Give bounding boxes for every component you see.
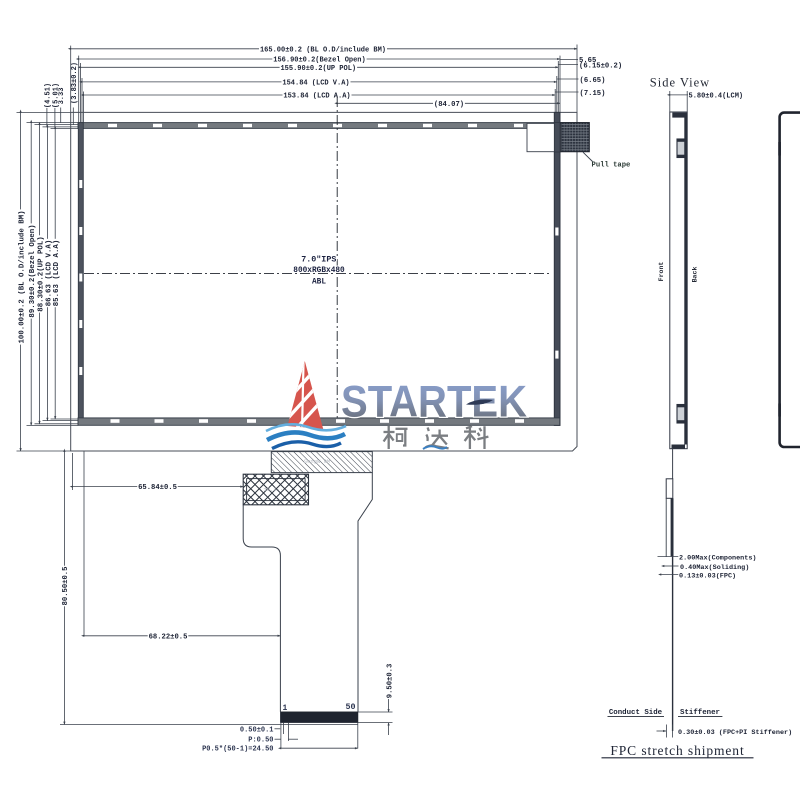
svg-text:SongW 9M: SongW 9M: [304, 458, 330, 465]
svg-text:(7.15): (7.15): [580, 90, 606, 98]
svg-text:0.13±0.03(FPC): 0.13±0.03(FPC): [679, 572, 736, 580]
svg-text:7.0"IPS: 7.0"IPS: [301, 255, 336, 265]
svg-text:P0.5*(50-1)=24.50: P0.5*(50-1)=24.50: [202, 746, 273, 754]
svg-text:(5.01): (5.01): [52, 83, 60, 108]
svg-text:154.84 (LCD V.A): 154.84 (LCD V.A): [282, 79, 349, 87]
svg-text:88.30±0.2(UP POL): 88.30±0.2(UP POL): [38, 236, 46, 311]
svg-text:0.30±0.03 (FPC+PI Stiffener): 0.30±0.03 (FPC+PI Stiffener): [678, 729, 792, 737]
svg-text:89.30±0.2(Bezel Open): 89.30±0.2(Bezel Open): [29, 224, 37, 317]
svg-text:(4.51): (4.51): [44, 83, 52, 108]
svg-text:(84.07): (84.07): [434, 101, 464, 109]
svg-text:0.50±0.1: 0.50±0.1: [240, 726, 274, 734]
svg-text:155.90±0.2(UP POL): 155.90±0.2(UP POL): [280, 65, 356, 73]
svg-text:800xRGBx480: 800xRGBx480: [293, 267, 345, 275]
svg-text:Back: Back: [692, 267, 699, 283]
svg-text:65.84±0.5: 65.84±0.5: [138, 484, 177, 492]
svg-text:ABL: ABL: [312, 279, 326, 287]
svg-text:86.63 (LCD V.A): 86.63 (LCD V.A): [45, 240, 53, 307]
svg-text:100.00±0.2 (BL O.D/include BM): 100.00±0.2 (BL O.D/include BM): [19, 210, 27, 343]
svg-text:Side View: Side View: [650, 76, 710, 90]
svg-text:FPC stretch shipment: FPC stretch shipment: [610, 743, 744, 758]
svg-text:Pull tape: Pull tape: [592, 161, 631, 169]
svg-text:(3.83±0.2): (3.83±0.2): [71, 62, 79, 104]
svg-text:(6.15±0.2): (6.15±0.2): [579, 62, 622, 70]
svg-text:±0.1···: ±0.1···: [263, 486, 286, 493]
svg-text:68.22±0.5: 68.22±0.5: [149, 633, 188, 641]
svg-text:85.63 (LCD A.A): 85.63 (LCD A.A): [53, 240, 61, 307]
svg-text:156.90±0.2(Bezel Open): 156.90±0.2(Bezel Open): [273, 57, 365, 65]
svg-text:1: 1: [283, 704, 288, 713]
svg-text:80.50±0.5: 80.50±0.5: [62, 567, 70, 606]
svg-text:P:0.50: P:0.50: [248, 737, 273, 745]
svg-text:(6.65): (6.65): [580, 77, 606, 85]
svg-text:Front: Front: [658, 262, 665, 282]
svg-text:Stiffener: Stiffener: [680, 709, 720, 717]
svg-text:STARTEK: STARTEK: [341, 378, 527, 427]
svg-text:9.50±0.3: 9.50±0.3: [386, 664, 394, 699]
svg-text:50: 50: [345, 702, 355, 712]
svg-text:153.84 (LCD A.A): 153.84 (LCD A.A): [283, 93, 350, 101]
svg-text:5.80±0.4(LCM): 5.80±0.4(LCM): [689, 93, 744, 101]
svg-text:Conduct Side: Conduct Side: [609, 709, 663, 717]
svg-text:2.00Max(Components): 2.00Max(Components): [679, 554, 757, 562]
svg-text:165.00±0.2 (BL O.D/include BM): 165.00±0.2 (BL O.D/include BM): [260, 46, 386, 54]
svg-text:0.40Max(Soliding): 0.40Max(Soliding): [680, 564, 749, 572]
